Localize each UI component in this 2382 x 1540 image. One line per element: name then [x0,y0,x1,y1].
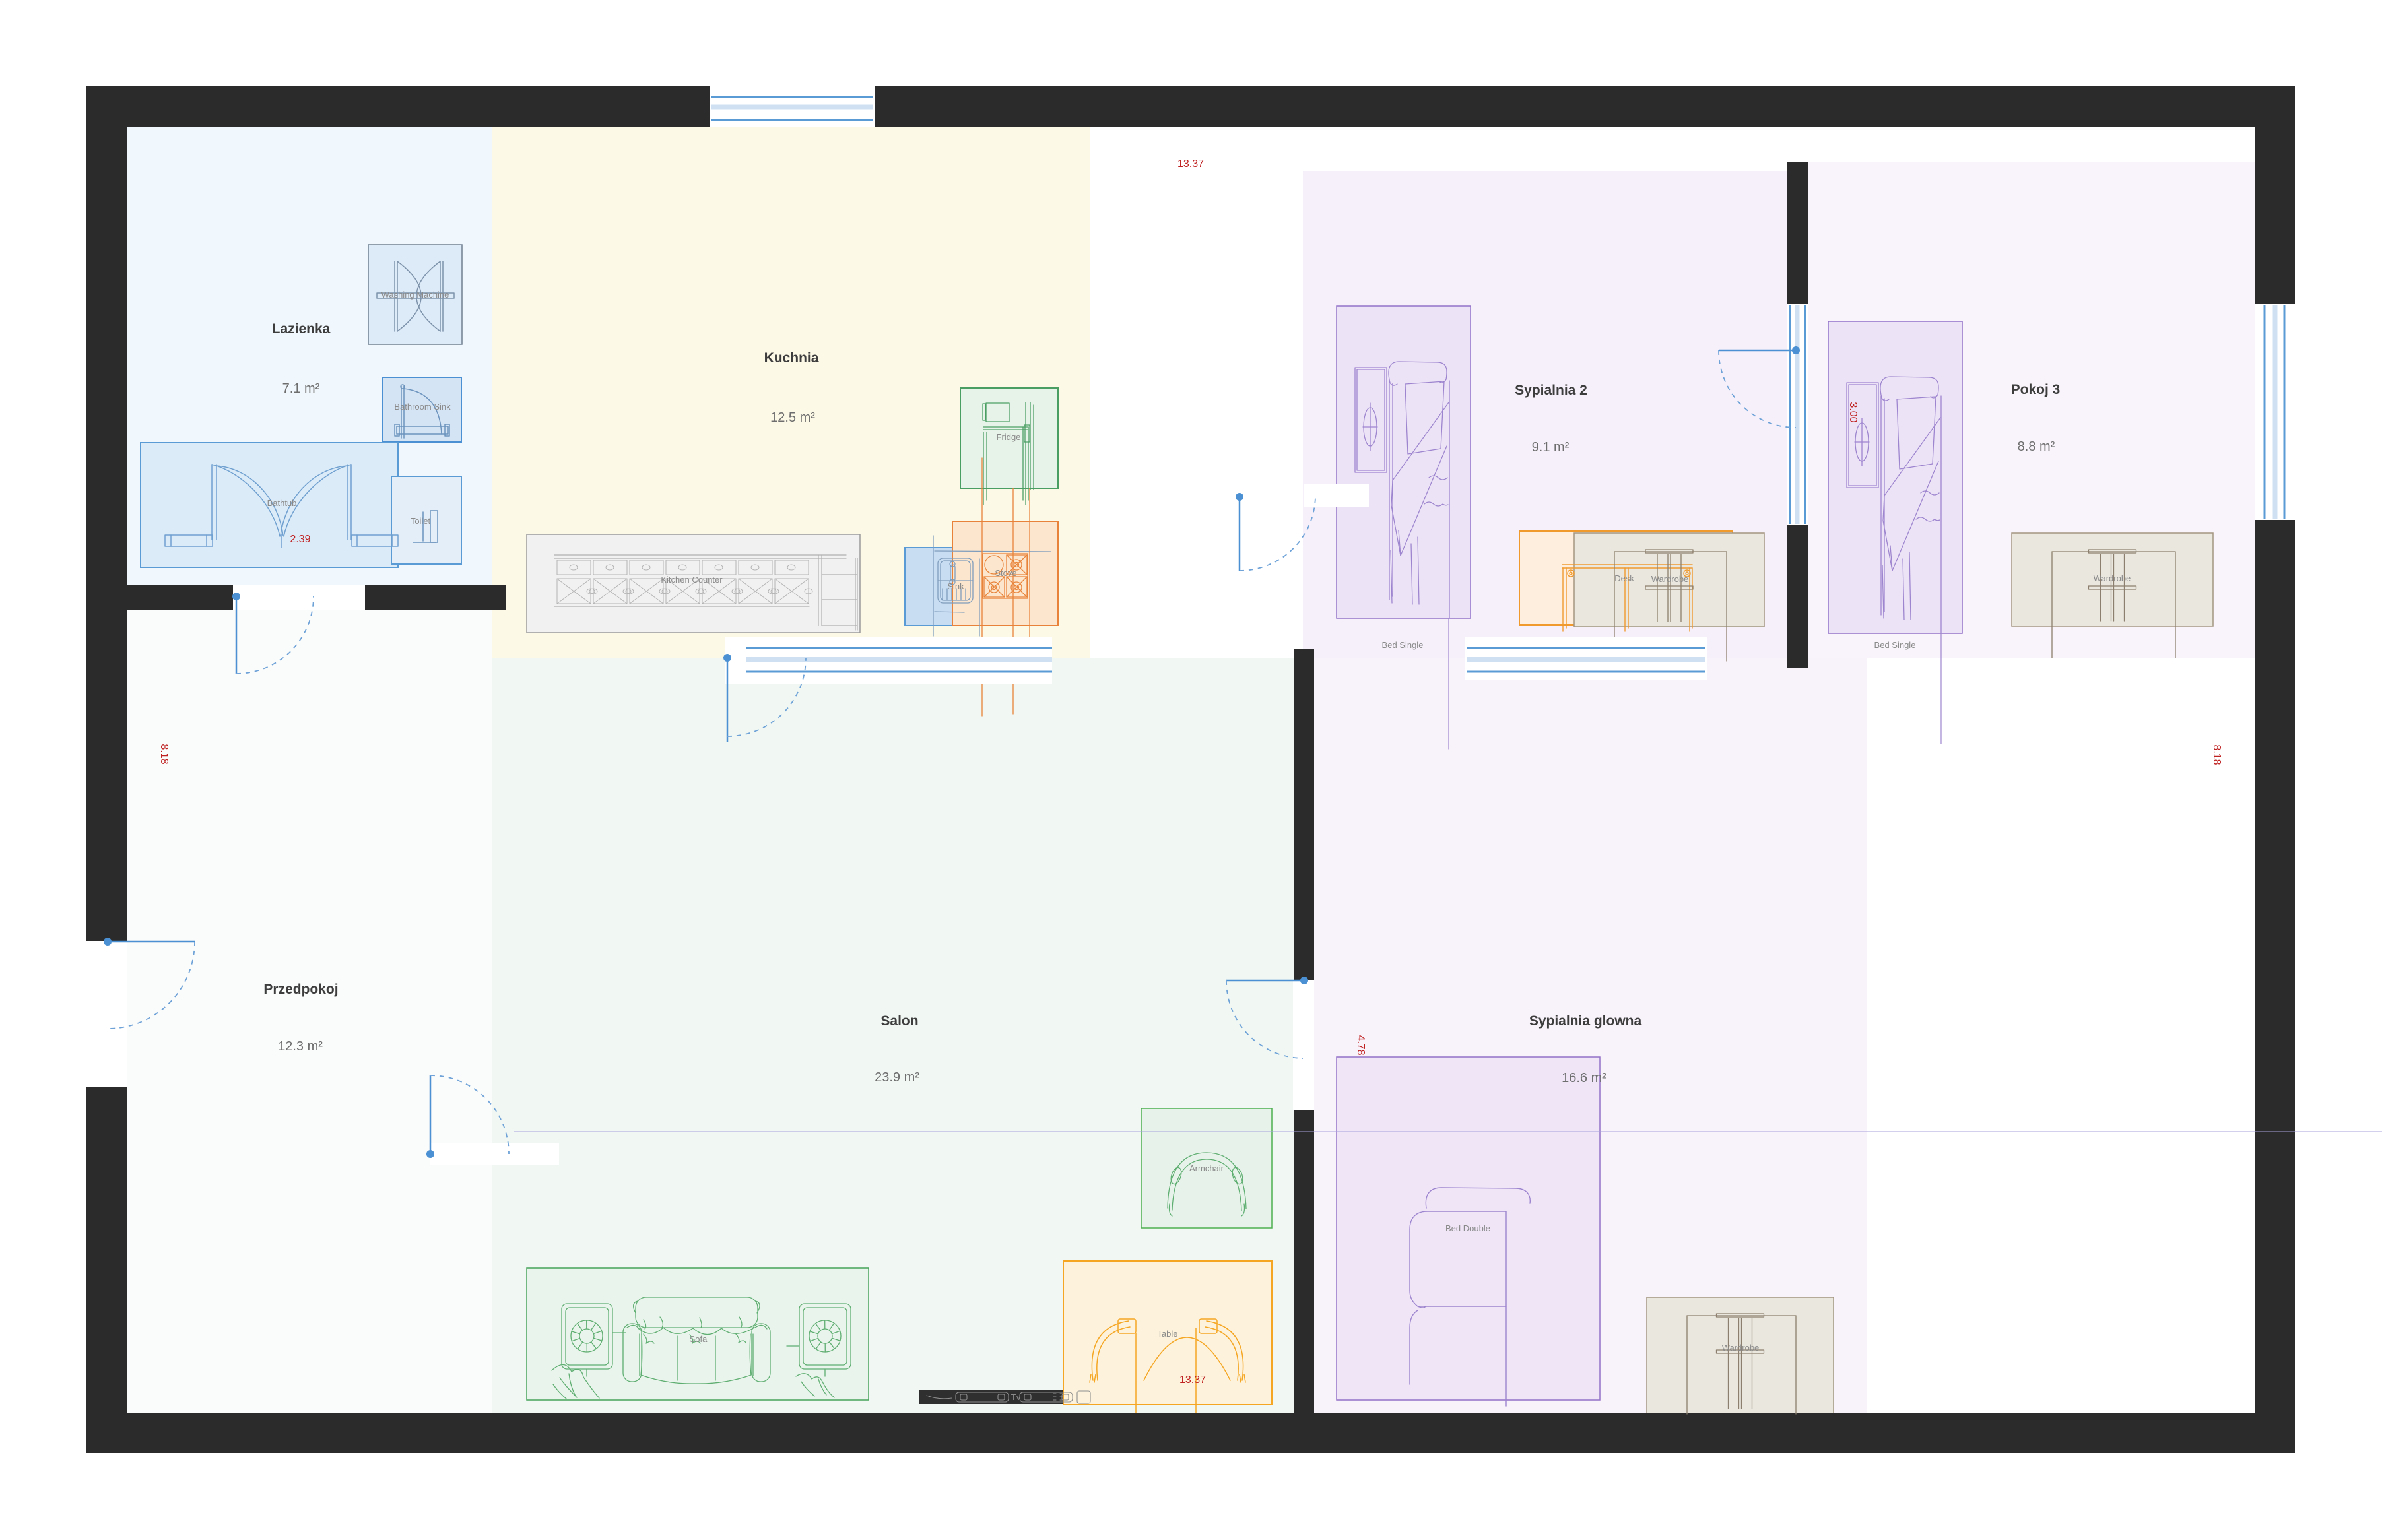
svg-text:Sink: Sink [947,581,964,591]
svg-text:Table: Table [1157,1329,1177,1339]
svg-text:Salon: Salon [880,1013,918,1029]
svg-text:2.39: 2.39 [290,534,310,545]
svg-text:Bathroom Sink: Bathroom Sink [394,402,451,412]
svg-text:8.18: 8.18 [158,744,170,764]
svg-text:12.3 m²: 12.3 m² [278,1039,323,1054]
svg-text:9.1 m²: 9.1 m² [1532,440,1570,455]
svg-text:Bed Single: Bed Single [1874,640,1916,650]
svg-text:Sypialnia 2: Sypialnia 2 [1515,383,1587,398]
svg-text:Kitchen Counter: Kitchen Counter [661,575,723,585]
svg-text:Toilet: Toilet [411,516,431,526]
svg-text:Stove: Stove [995,568,1016,578]
svg-text:Kuchnia: Kuchnia [764,350,819,366]
svg-text:Bathtub: Bathtub [267,498,297,508]
svg-text:Wardrobe: Wardrobe [2094,573,2131,583]
svg-text:Sypialnia glowna: Sypialnia glowna [1529,1013,1642,1029]
svg-text:Desk: Desk [1614,573,1634,583]
svg-text:Wardrobe: Wardrobe [1722,1343,1760,1353]
svg-text:Armchair: Armchair [1189,1163,1224,1173]
svg-text:Bed Double: Bed Double [1445,1223,1490,1233]
svg-text:Pokoj 3: Pokoj 3 [2011,382,2061,397]
svg-text:12.5 m²: 12.5 m² [770,410,815,425]
svg-text:Bed Single: Bed Single [1382,640,1424,650]
svg-text:Washing Machine: Washing Machine [381,290,449,300]
svg-text:Fridge: Fridge [997,432,1021,442]
svg-text:16.6 m²: 16.6 m² [1562,1071,1606,1085]
svg-text:4.78: 4.78 [1355,1035,1366,1055]
svg-text:Sofa: Sofa [690,1334,708,1344]
svg-text:8.8 m²: 8.8 m² [2018,439,2055,454]
svg-text:Przedpokoj: Przedpokoj [263,982,338,997]
svg-text:23.9 m²: 23.9 m² [875,1070,919,1085]
svg-text:13.37: 13.37 [1177,158,1204,170]
svg-text:Wardrobe: Wardrobe [1651,574,1689,584]
svg-text:8.18: 8.18 [2211,744,2222,765]
svg-text:3.00: 3.00 [1847,402,1859,422]
svg-text:13.37: 13.37 [1179,1374,1206,1386]
svg-text:Tv: Tv [1011,1392,1021,1402]
svg-text:7.1 m²: 7.1 m² [282,381,320,396]
svg-text:Lazienka: Lazienka [272,321,331,337]
